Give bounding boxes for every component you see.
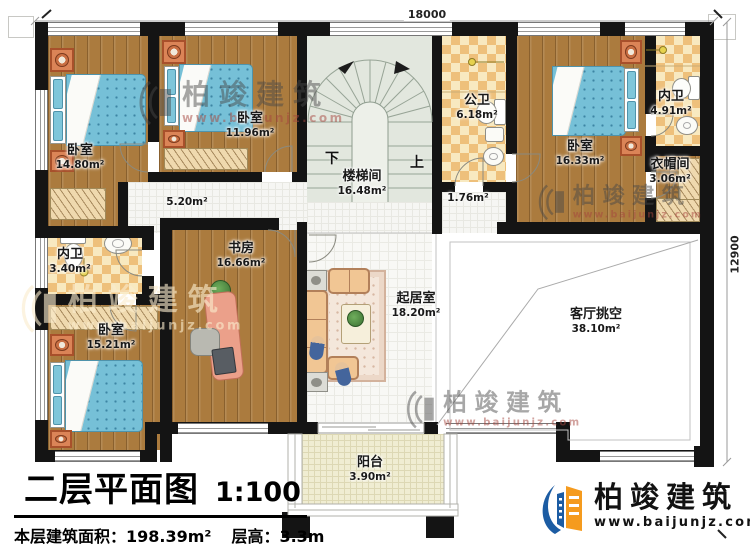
window <box>35 330 48 420</box>
sink-icon <box>485 127 504 142</box>
wall <box>148 36 159 142</box>
void-diagonal <box>437 240 698 425</box>
room-name: 阳台 <box>349 456 390 471</box>
brand-url: www.baijunjz.com <box>594 515 750 530</box>
room-name: 书房 <box>217 242 266 257</box>
room-name: 起居室 <box>392 292 441 307</box>
window <box>55 451 140 462</box>
hallway-area-label: 5.20m² <box>166 196 207 208</box>
wardrobe <box>164 148 248 170</box>
window <box>178 423 268 434</box>
wall <box>645 136 656 146</box>
wall <box>432 182 455 192</box>
room-area: 18.20m² <box>392 307 441 319</box>
monitor-icon <box>211 347 236 376</box>
brand-text: 柏竣建筑 www.baijunjz.com <box>594 482 750 530</box>
room-label-bedroom-top-middle: 卧室 11.96m² <box>226 112 275 139</box>
room-name: 公卫 <box>456 94 497 109</box>
wall <box>432 36 442 234</box>
wall <box>645 198 656 222</box>
wall <box>172 218 279 230</box>
room-area: 3.06m² <box>649 173 690 185</box>
room-area: 5.20m² <box>166 196 207 208</box>
side-table <box>305 270 327 291</box>
window <box>330 22 452 36</box>
nightstand <box>162 40 186 64</box>
room-name: 卧室 <box>226 112 275 127</box>
window <box>446 423 556 434</box>
wall <box>497 222 714 234</box>
room-label-bedroom-top-right: 卧室 16.33m² <box>556 140 605 167</box>
wall <box>506 36 517 154</box>
room-name: 衣帽间 <box>649 158 690 173</box>
brand-name: 柏竣建筑 <box>594 482 750 512</box>
wardrobe <box>50 188 106 220</box>
room-area: 1.76m² <box>447 192 488 204</box>
room-label-living: 起居室 18.20m² <box>392 292 441 319</box>
plan-title: 二层平面图 <box>24 462 199 511</box>
room-name: 楼梯间 <box>338 170 387 185</box>
room-label-ensuite-left: 内卫 3.40m² <box>49 248 90 275</box>
room-area: 15.21m² <box>87 339 136 351</box>
bed-pillows <box>50 362 65 428</box>
room-label-ensuite-top-right: 内卫 4.91m² <box>650 90 691 117</box>
stair-down-label: 下 <box>325 148 339 168</box>
dimension-top: 18000 <box>404 8 450 21</box>
window <box>600 451 694 462</box>
plant-icon <box>347 310 364 327</box>
wall <box>506 186 517 222</box>
room-label-balcony: 阳台 3.90m² <box>349 456 390 483</box>
wall <box>160 218 172 462</box>
wall <box>148 172 262 182</box>
sofa <box>328 268 370 294</box>
window <box>35 238 48 288</box>
nightstand <box>50 48 74 72</box>
wall <box>297 222 307 422</box>
bed-pillows <box>164 66 179 126</box>
bed <box>66 74 146 146</box>
room-area: 6.18m² <box>456 109 497 121</box>
room-name: 卧室 <box>56 144 105 159</box>
nightstand <box>50 430 72 448</box>
window <box>625 22 685 36</box>
room-label-study: 书房 16.66m² <box>217 242 266 269</box>
room-label-stairwell: 楼梯间 16.48m² <box>338 170 387 197</box>
room-area: 38.10m² <box>570 323 622 335</box>
room-area: 14.80m² <box>56 159 105 171</box>
brand-logo: 柏竣建筑 www.baijunjz.com <box>538 482 750 536</box>
room-name: 卧室 <box>87 324 136 339</box>
room-label-bedroom-bottom-left: 卧室 15.21m² <box>87 324 136 351</box>
wall <box>35 294 118 305</box>
room-area: 16.48m² <box>338 185 387 197</box>
room-name: 内卫 <box>650 90 691 105</box>
room-name: 客厅挑空 <box>570 308 622 323</box>
wall <box>142 226 154 250</box>
bed <box>65 360 143 432</box>
stair-landing-floor <box>307 202 432 233</box>
room-area: 4.91m² <box>650 105 691 117</box>
watermark-text: 柏竣建筑 <box>443 391 581 415</box>
room-area: 11.96m² <box>226 127 275 139</box>
plan-scale: 1:100 <box>215 477 301 508</box>
nightstand <box>163 130 185 148</box>
title-block: 二层平面图 1:100 本层建筑面积：198.39m² 层高：3.3m <box>14 462 324 547</box>
brand-logo-icon <box>538 482 586 536</box>
nightstand <box>50 334 74 356</box>
nightstand <box>620 40 642 64</box>
floor-area-label: 本层建筑面积：198.39m² <box>14 523 211 547</box>
window <box>48 22 140 36</box>
sink-icon <box>483 147 504 166</box>
landing-area-label: 1.76m² <box>447 192 488 204</box>
floor-height-label: 层高：3.3m <box>231 523 324 547</box>
room-name: 内卫 <box>49 248 90 263</box>
dimension-right: 12900 <box>729 228 742 282</box>
title-row: 二层平面图 1:100 <box>14 462 307 518</box>
room-area: 16.33m² <box>556 155 605 167</box>
wall <box>292 172 307 182</box>
stair-up-label: 上 <box>410 152 424 172</box>
exterior-ledge <box>8 16 34 38</box>
room-label-living-void: 客厅挑空 38.10m² <box>570 308 622 335</box>
wardrobe <box>656 198 700 222</box>
window <box>518 22 600 36</box>
wall <box>700 22 714 462</box>
room-label-bedroom-top-left: 卧室 14.80m² <box>56 144 105 171</box>
balcony-post <box>426 512 454 538</box>
room-area: 3.90m² <box>349 471 390 483</box>
side-table <box>305 372 328 392</box>
wall <box>35 226 142 238</box>
wall <box>645 146 714 156</box>
sliding-door <box>318 423 424 433</box>
room-label-cloakroom: 衣帽间 3.06m² <box>649 158 690 185</box>
room-area: 3.40m² <box>49 263 90 275</box>
title-subrow: 本层建筑面积：198.39m² 层高：3.3m <box>14 523 324 547</box>
wall <box>136 294 160 305</box>
room-area: 16.66m² <box>217 257 266 269</box>
wall <box>118 182 128 226</box>
wall <box>424 422 438 434</box>
room-label-public-bath: 公卫 6.18m² <box>456 94 497 121</box>
bed-pillows <box>624 68 639 132</box>
room-name: 卧室 <box>556 140 605 155</box>
bed-pillows <box>50 76 66 144</box>
window <box>35 90 48 170</box>
sink-icon <box>676 116 698 135</box>
window <box>185 22 278 36</box>
nightstand <box>620 136 642 156</box>
bed <box>552 66 626 136</box>
wall <box>297 36 307 176</box>
floor-plan: 柏竣建筑 www.baijunjz.com 柏竣建筑 www.baijunjz.… <box>0 0 750 548</box>
